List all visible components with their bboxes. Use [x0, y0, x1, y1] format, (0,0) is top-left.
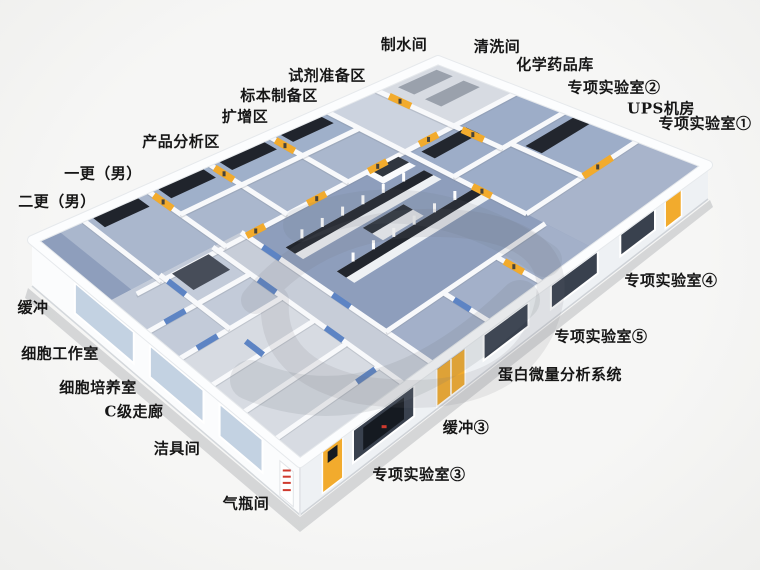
label-second-change-room-male: 二更（男）	[18, 191, 96, 212]
door-window	[376, 164, 379, 169]
label-water-production-room: 制水间	[381, 34, 428, 55]
label-special-lab-2: 专项实验室②	[567, 77, 660, 98]
lab-rendering-canvas: 制水间 清洗间 化学药品库 专项实验室② UPS机房 专项实验室① 试剂准备区 …	[0, 0, 760, 570]
sign-red-text	[283, 476, 291, 478]
door-window	[471, 132, 474, 137]
label-special-lab-4: 专项实验室④	[624, 270, 717, 291]
label-buffer-room: 缓冲	[17, 297, 48, 318]
door-window	[399, 99, 402, 104]
sign-red-text	[283, 482, 291, 484]
label-specimen-preparation-area: 标本制备区	[240, 85, 318, 106]
door-window	[223, 171, 226, 176]
label-class-c-corridor: C级走廊	[105, 401, 164, 422]
door-window	[315, 196, 318, 201]
screen-red-digit	[382, 425, 387, 428]
label-special-lab-1: 专项实验室①	[658, 113, 751, 134]
door-window	[254, 228, 257, 233]
bench-shelf-post	[402, 173, 405, 182]
label-washing-room: 清洗间	[474, 36, 521, 57]
door-window	[512, 264, 515, 269]
bench-shelf-post	[352, 253, 355, 262]
label-amplification-area: 扩增区	[222, 106, 269, 127]
sign-red-text	[283, 489, 291, 491]
label-reagent-preparation-area: 试剂准备区	[288, 65, 366, 86]
label-cell-culture-room: 细胞培养室	[59, 377, 137, 398]
label-gas-cylinder-room: 气瓶间	[223, 493, 270, 514]
sign-red-text	[283, 470, 291, 472]
label-cell-workroom: 细胞工作室	[21, 343, 99, 364]
door-window	[162, 199, 165, 204]
label-chemical-reagent-storage: 化学药品库	[516, 54, 594, 75]
door-window	[427, 137, 430, 142]
label-protein-microanalysis-system: 蛋白微量分析系统	[498, 364, 622, 385]
door-window	[283, 143, 286, 148]
door-window	[596, 164, 599, 169]
label-buffer-room-3: 缓冲③	[443, 417, 490, 438]
label-cleaning-tools-room: 洁具间	[154, 438, 201, 459]
door-window	[480, 189, 483, 194]
label-product-analysis-area: 产品分析区	[142, 131, 220, 152]
label-special-lab-3: 专项实验室③	[372, 464, 465, 485]
label-special-lab-5: 专项实验室⑤	[554, 326, 647, 347]
label-first-change-room-male: 一更（男）	[64, 163, 142, 184]
